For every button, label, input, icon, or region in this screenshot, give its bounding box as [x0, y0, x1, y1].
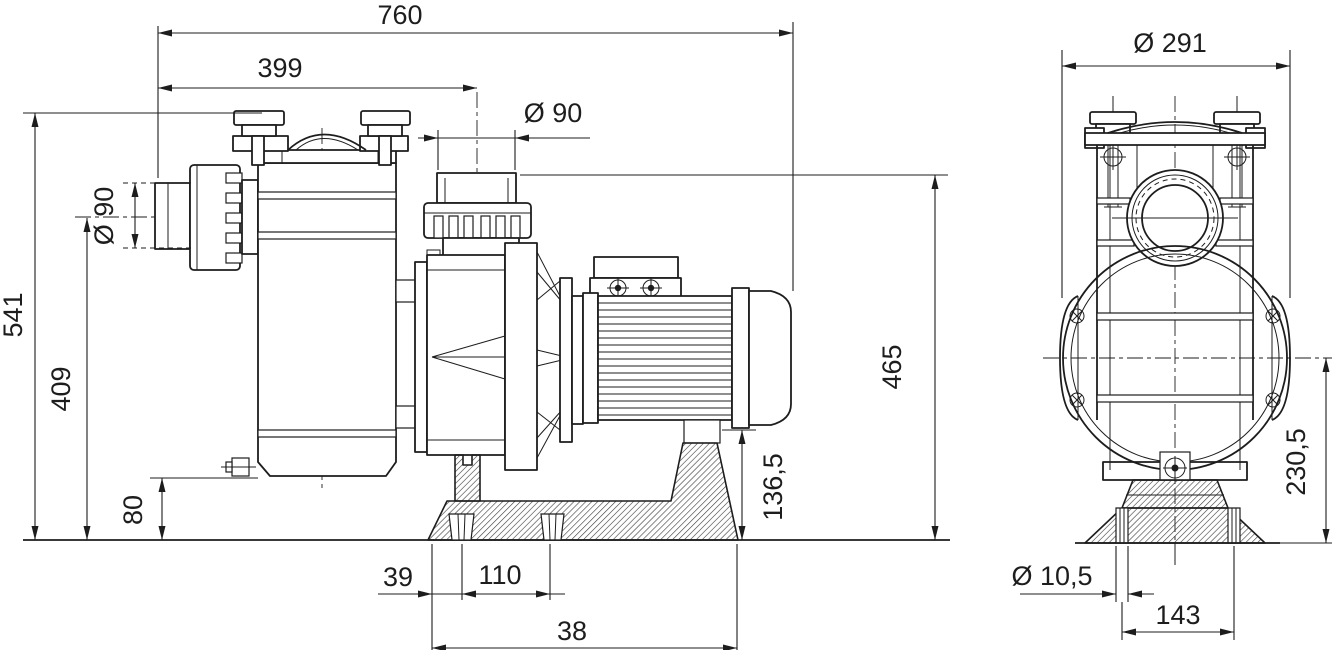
foot-hole-slot [1116, 508, 1128, 543]
front-lower-body [1103, 452, 1247, 480]
dim-overall-length-label: 760 [377, 0, 422, 30]
dimension-outlet-diameter: Ø 90 [418, 98, 590, 170]
terminal-box [594, 257, 678, 278]
foot-slot [541, 514, 564, 540]
dim-inlet-axis-height-label: 409 [46, 366, 76, 411]
dimension-399: 399 [158, 53, 477, 92]
front-port-circle [1112, 170, 1238, 266]
dimension-80: 80 [118, 478, 258, 540]
dim-foot-hole-diameter-label: Ø 10,5 [1011, 561, 1092, 591]
pump-technical-drawing: 760 399 Ø 90 Ø 90 [0, 0, 1336, 650]
motor-end-cap [749, 291, 791, 425]
side-view: 760 399 Ø 90 Ø 90 [0, 0, 950, 650]
dimension-39-110: 39 110 [378, 544, 565, 650]
motor [583, 257, 791, 443]
dim-outlet-top-height-label: 465 [877, 344, 907, 389]
dim-motor-foot-height-label: 136,5 [758, 453, 788, 521]
dim-slot-spacing-label: 110 [478, 560, 521, 590]
pump-support-column [455, 455, 480, 501]
dim-inlet-diameter-label: Ø 90 [89, 187, 119, 246]
dim-outlet-diameter-label: Ø 90 [524, 98, 583, 128]
dimension-10-5: Ø 10,5 [1011, 546, 1154, 602]
front-view: Ø 291 230,5 Ø 10,5 143 [1011, 28, 1332, 640]
dim-base-edge-slot-label: 39 [383, 562, 413, 592]
dim-lid-diameter-label: Ø 291 [1133, 28, 1207, 58]
base-feet [428, 443, 738, 540]
dimension-409: 409 [46, 218, 91, 540]
motor-pedestal [684, 420, 720, 443]
pump-volute [396, 243, 583, 470]
bracket-fins [537, 252, 562, 458]
foot-hole-slot [1228, 508, 1240, 543]
suction-port [155, 165, 258, 270]
dim-base-length-label: 38 [557, 616, 587, 646]
dim-inlet-outlet-label: 399 [257, 53, 302, 83]
foot-slot [449, 514, 474, 540]
dim-axis-height-label: 230,5 [1281, 428, 1311, 496]
dim-total-height-label: 541 [0, 292, 28, 337]
drawing-canvas: 760 399 Ø 90 Ø 90 [0, 0, 1336, 650]
dim-drain-height-label: 80 [118, 495, 148, 525]
tank-lid [233, 111, 410, 165]
dim-foot-hole-spacing-label: 143 [1155, 600, 1200, 630]
